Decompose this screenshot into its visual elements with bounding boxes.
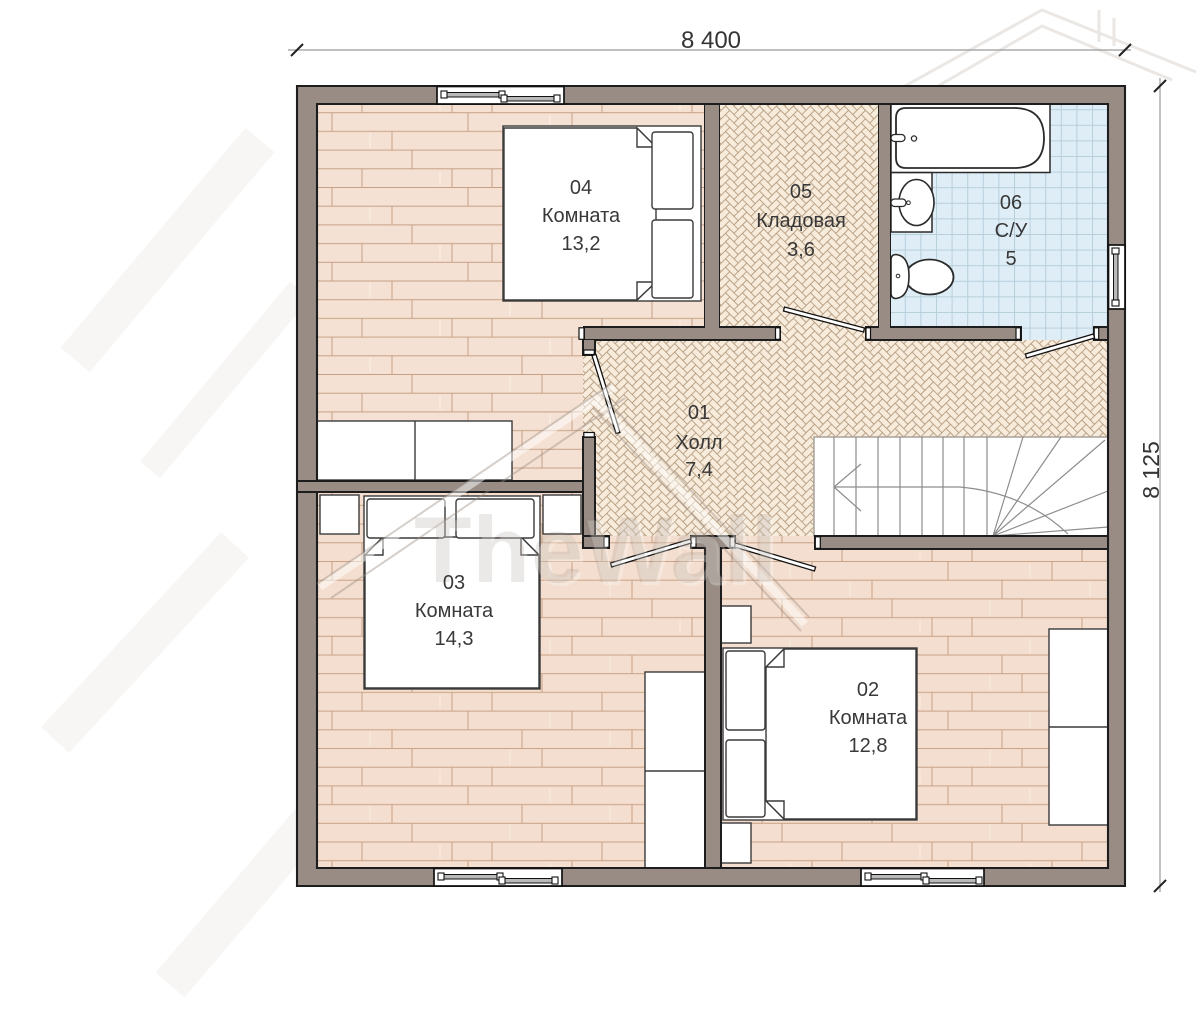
svg-text:TheWall: TheWall bbox=[414, 497, 778, 602]
svg-text:Холл: Холл bbox=[675, 432, 722, 454]
svg-text:8 125: 8 125 bbox=[1138, 441, 1164, 499]
svg-text:3,6: 3,6 bbox=[787, 239, 815, 261]
svg-text:03: 03 bbox=[443, 572, 465, 594]
svg-text:01: 01 bbox=[688, 402, 710, 424]
svg-text:7,4: 7,4 bbox=[685, 459, 713, 481]
svg-text:8 400: 8 400 bbox=[681, 27, 741, 54]
svg-text:06: 06 bbox=[1000, 192, 1022, 214]
svg-text:Комната: Комната bbox=[829, 707, 908, 729]
svg-text:12,8: 12,8 bbox=[849, 735, 888, 757]
svg-text:Комната: Комната bbox=[542, 205, 621, 227]
svg-text:05: 05 bbox=[790, 181, 812, 203]
svg-text:04: 04 bbox=[570, 177, 592, 199]
svg-text:Комната: Комната bbox=[415, 600, 494, 622]
svg-text:5: 5 bbox=[1005, 248, 1016, 270]
svg-text:02: 02 bbox=[857, 679, 879, 701]
svg-text:13,2: 13,2 bbox=[562, 233, 601, 255]
svg-text:С/У: С/У bbox=[995, 220, 1028, 242]
svg-text:14,3: 14,3 bbox=[435, 628, 474, 650]
svg-text:Кладовая: Кладовая bbox=[756, 210, 846, 232]
